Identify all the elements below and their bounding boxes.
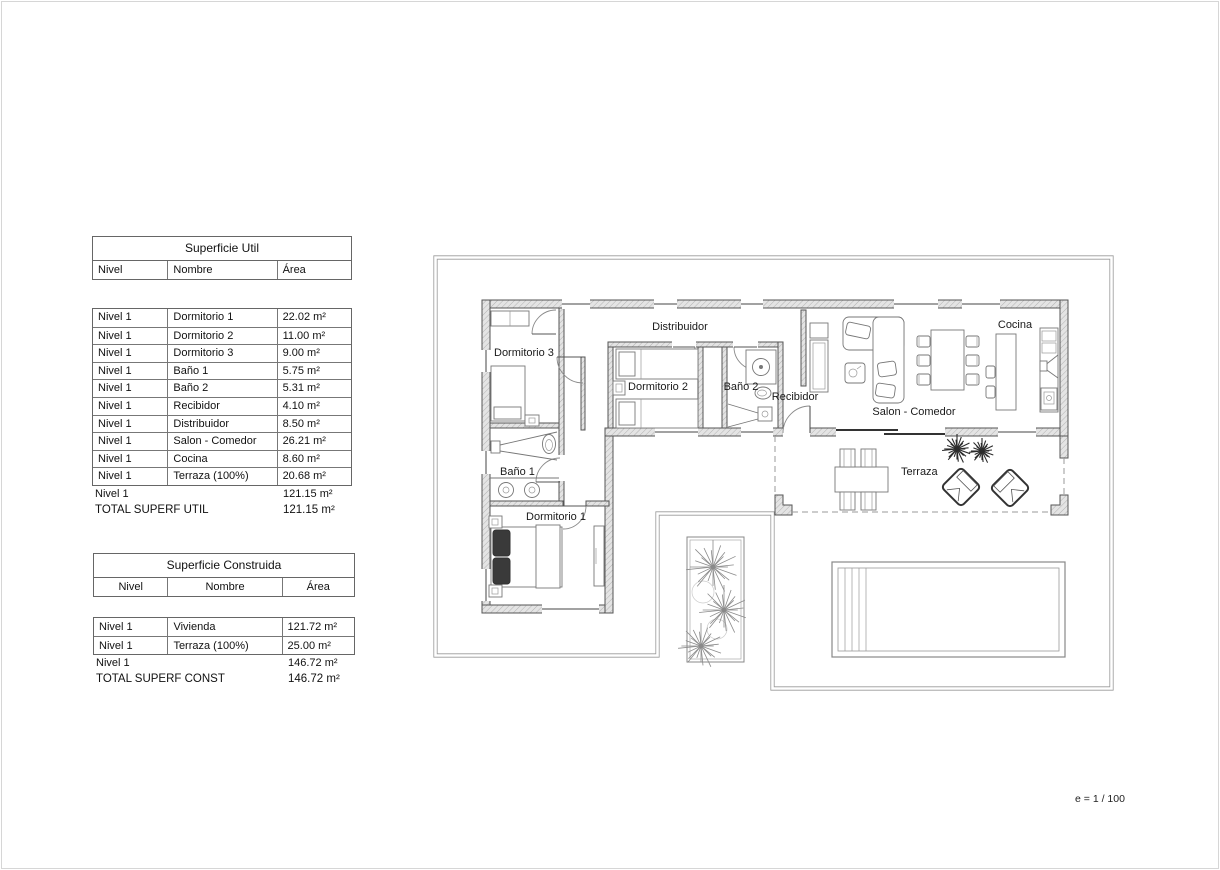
lounge-chair: [990, 468, 1030, 508]
pillow: [493, 558, 510, 584]
wardrobe: [594, 526, 604, 586]
terrace-pillar: [775, 495, 792, 515]
pillow: [619, 352, 635, 376]
cushion: [877, 361, 897, 377]
nightstand: [525, 415, 539, 426]
floor-plan: Dormitorio 3 Distribuidor Dormitorio 2 B…: [0, 0, 1220, 870]
outdoor-chair: [840, 449, 855, 467]
kitchen-island: [996, 334, 1016, 410]
nightstand: [489, 516, 502, 528]
outdoor-chair: [861, 492, 876, 510]
stool: [986, 386, 995, 398]
pillow: [493, 530, 510, 556]
terrace-pillar: [1051, 495, 1068, 515]
room-label-salon: Salon - Comedor: [872, 406, 955, 418]
pillow: [619, 402, 635, 425]
dining-table: [931, 330, 964, 390]
outdoor-chair: [840, 492, 855, 510]
room-label-dormitorio2: Dormitorio 2: [628, 381, 688, 393]
room-label-dormitorio3: Dormitorio 3: [494, 347, 554, 359]
bathtub: [758, 407, 772, 421]
stool: [986, 366, 995, 378]
room-label-dormitorio1: Dormitorio 1: [526, 511, 586, 523]
room-label-bano1: Baño 1: [500, 466, 535, 478]
plant-icon: [942, 434, 970, 463]
plant-icon: [969, 438, 993, 463]
blanket: [536, 525, 560, 588]
planter: [678, 537, 746, 667]
shower-drain: [491, 441, 500, 453]
scale-label: e = 1 / 100: [1058, 793, 1142, 805]
cushion: [875, 383, 896, 399]
nightstand: [489, 585, 502, 597]
outdoor-table: [835, 467, 888, 492]
sink-icon: [525, 483, 540, 498]
room-label-distribuidor: Distribuidor: [652, 321, 708, 333]
room-label-terraza: Terraza: [901, 466, 939, 478]
hall-cabinet: [810, 323, 828, 338]
drawing-sheet: Superficie Util Nivel Nombre Área Nivel …: [0, 0, 1220, 870]
room-label-bano2: Baño 2: [724, 381, 759, 393]
pillow: [494, 407, 521, 419]
pool: [832, 562, 1065, 657]
outdoor-chair: [861, 449, 876, 467]
nightstand: [613, 381, 625, 395]
sink-icon: [499, 483, 514, 498]
side-table: [845, 363, 865, 383]
room-label-cocina: Cocina: [998, 319, 1033, 331]
lounge-chair: [941, 467, 981, 507]
kitchen-sink: [1041, 388, 1057, 410]
room-label-recibidor: Recibidor: [772, 391, 819, 403]
